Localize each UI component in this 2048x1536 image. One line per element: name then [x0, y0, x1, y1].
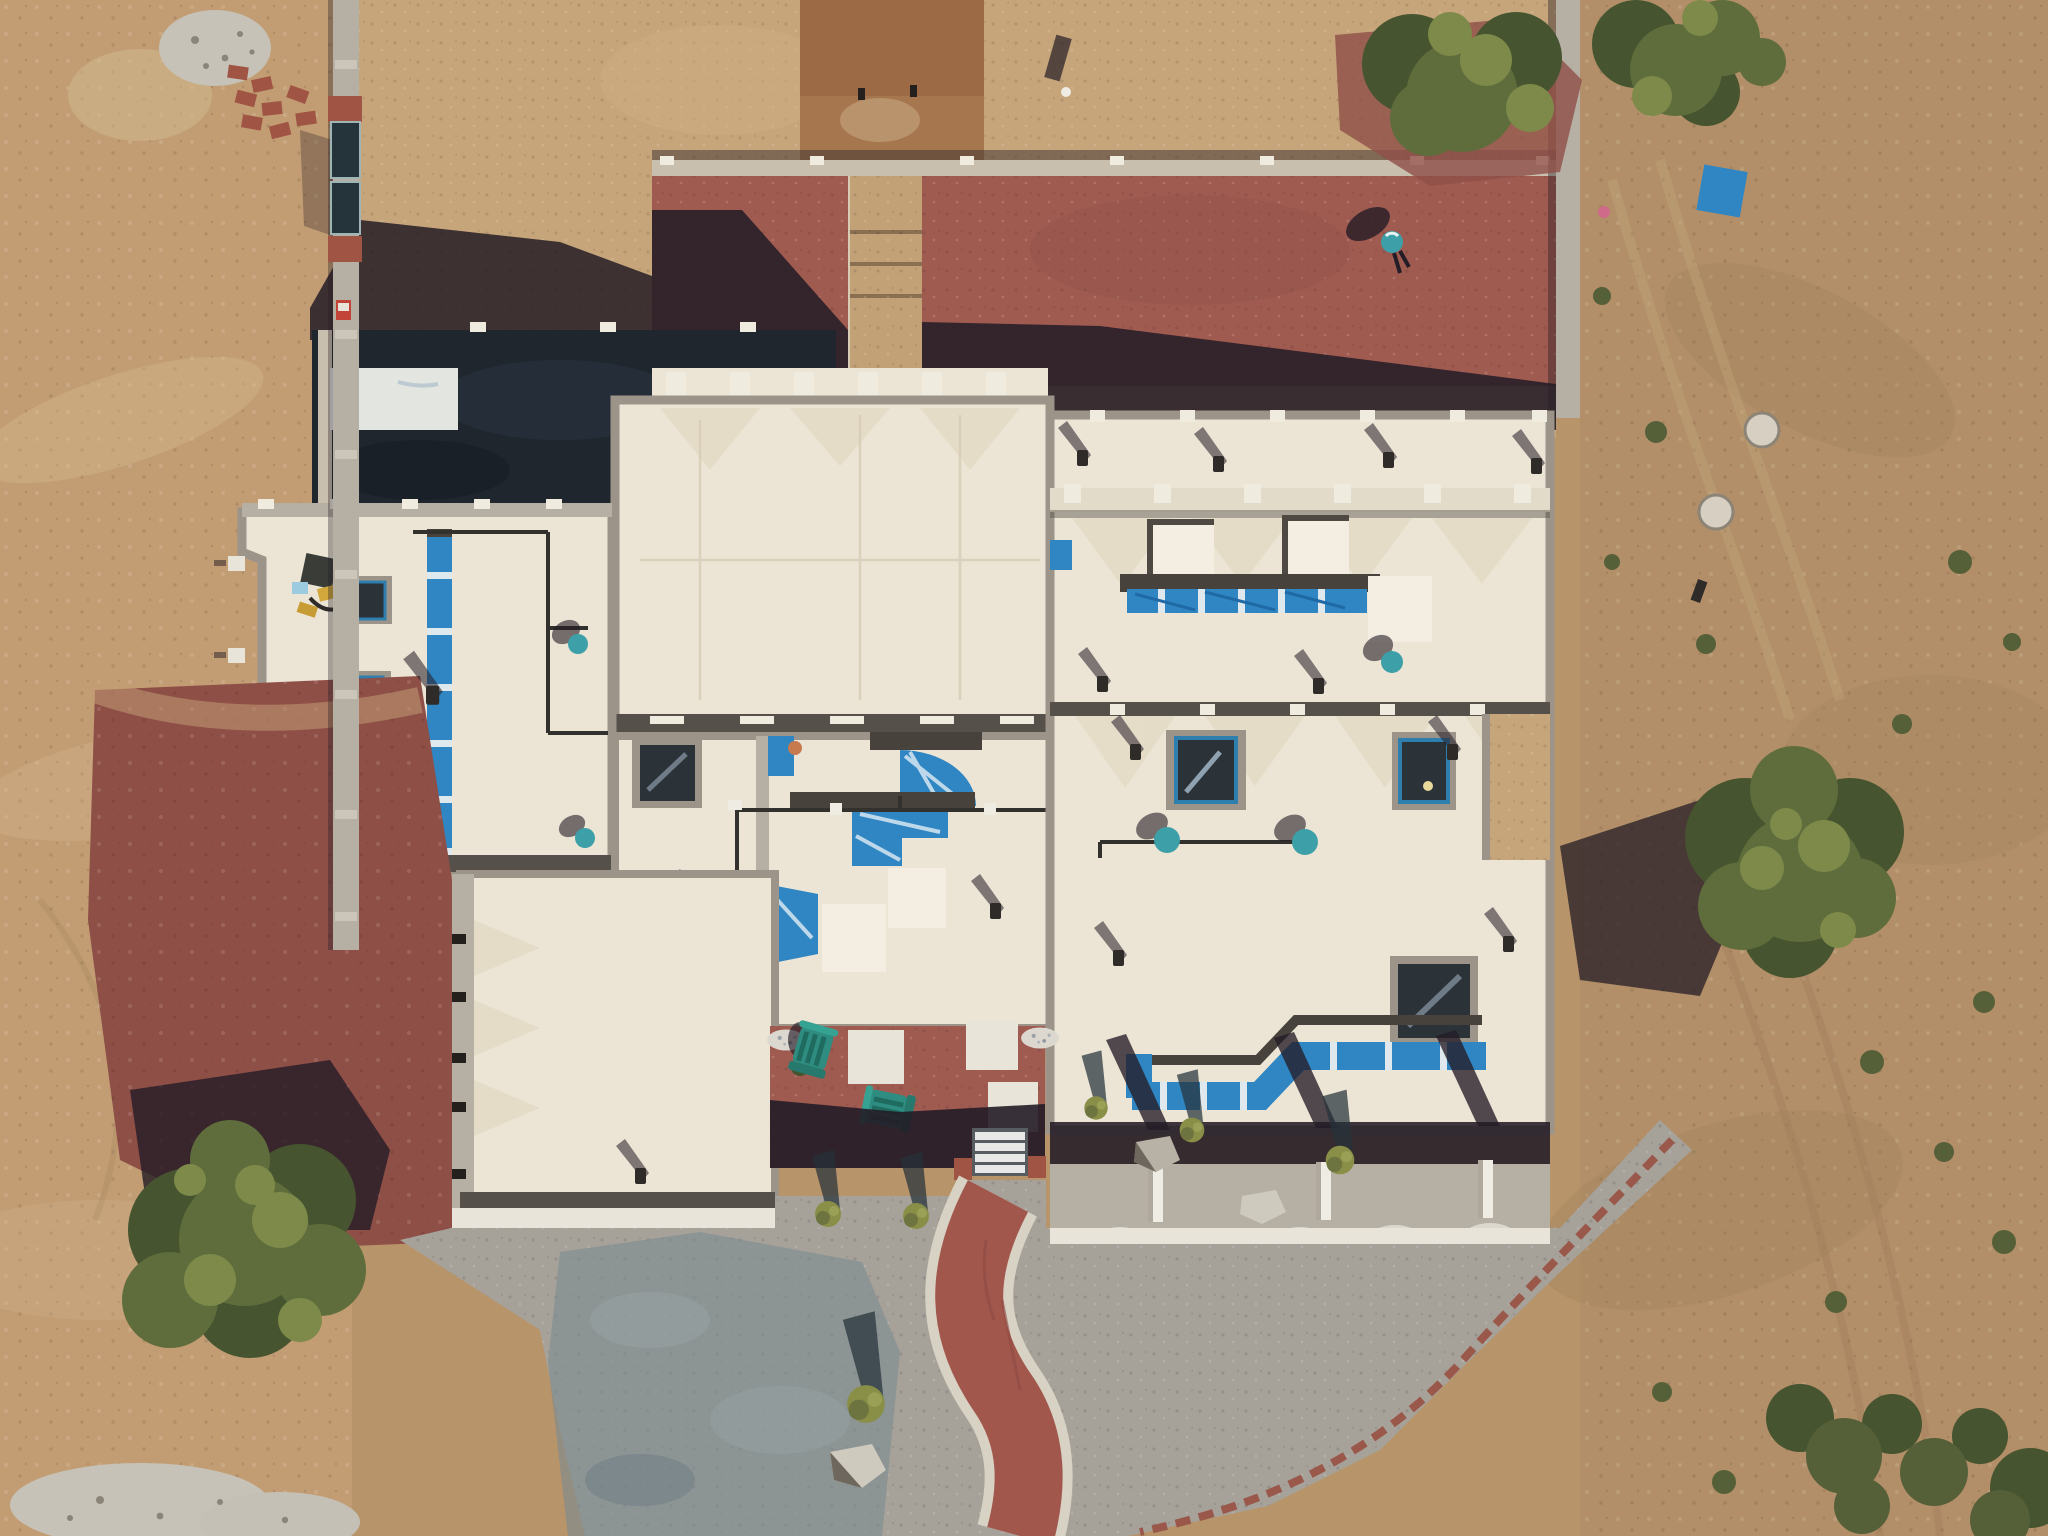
pink-flag: [1598, 206, 1610, 218]
channel-end-pad: [1368, 576, 1432, 642]
center-skylight: [632, 738, 702, 808]
manhole-lid: [1699, 495, 1733, 529]
blue-scrap: [1050, 540, 1072, 570]
damp-blotch: [585, 1454, 695, 1506]
scene-canvas: [0, 0, 2048, 1536]
pad-post: [910, 85, 917, 97]
gate-post-brick: [328, 96, 362, 122]
pad-post: [858, 88, 865, 100]
step-post-brick: [1028, 1156, 1046, 1178]
vent-dome-teal: [1381, 651, 1403, 673]
damp-blotch: [590, 1292, 710, 1348]
lower-left-south-parapet: [460, 1192, 775, 1210]
center-pent-stains: [660, 408, 1020, 470]
vent-dome-teal: [1154, 827, 1180, 853]
vent-dome-teal: [1292, 829, 1318, 855]
pad-stain: [840, 98, 920, 142]
courtyard-mottle: [1030, 195, 1350, 305]
inner-parapet-band: [1050, 488, 1550, 512]
vent-dome-teal: [575, 828, 595, 848]
stake: [1061, 87, 1071, 97]
gravel-pile: [159, 10, 271, 86]
portal-walk: [1050, 1164, 1550, 1228]
damp-blotch: [710, 1386, 850, 1454]
sidewalk-left: [452, 1208, 775, 1228]
aerial-photo: [0, 0, 2048, 1536]
step-post-brick: [954, 1158, 972, 1180]
gate-post-brick: [328, 236, 362, 262]
big-skylight: [1390, 956, 1478, 1046]
gate-shadow: [300, 130, 333, 236]
portal-shadow-band: [1050, 1122, 1550, 1164]
entry-steps: [972, 1128, 1028, 1176]
gate-panel: [331, 122, 360, 178]
blue-tarp-bundle: [1696, 165, 1747, 218]
atrium-wall: [1482, 714, 1490, 860]
white-rubble: [1021, 1028, 1059, 1049]
sign-white: [338, 303, 349, 311]
atrium-texture: [1488, 714, 1550, 860]
manhole-lid: [1745, 413, 1779, 447]
gate-panel: [331, 182, 360, 234]
vent-dome-teal: [568, 634, 588, 654]
sidewalk-right: [1050, 1228, 1550, 1244]
lower-left-west-wall: [452, 874, 474, 1208]
